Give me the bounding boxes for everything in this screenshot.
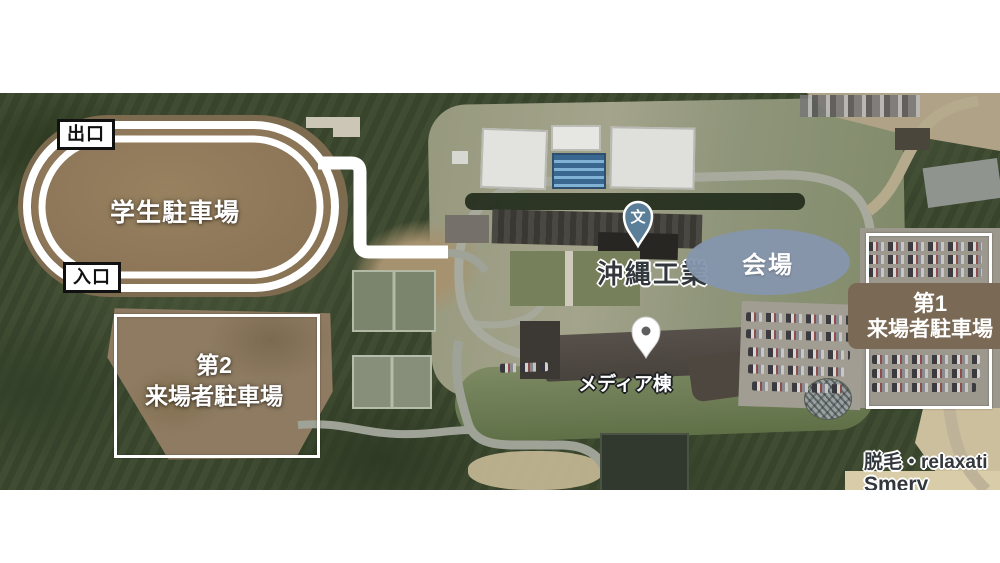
visitor-parking2-line1: 第2 (114, 350, 314, 381)
poi-label-line2: Smery (864, 473, 928, 490)
poi-label-line1: 脱毛・relaxati (864, 447, 988, 474)
school-pin-glyph: 文 (630, 208, 646, 226)
visitor-parking1-line2: 来場者駐車場 (867, 317, 993, 342)
media-building-label: メディア棟 (560, 369, 690, 396)
exit-label: 出口 (57, 119, 115, 150)
student-parking-label: 学生駐車場 (85, 193, 265, 229)
screenshot-canvas: 文 出口 入口 学生駐車場 第2 来場者駐車場 第1 来場者駐車場 沖縄工業 会… (0, 0, 1000, 563)
location-pin-icon (632, 317, 660, 358)
campus-satellite-map: 文 出口 入口 学生駐車場 第2 来場者駐車場 第1 来場者駐車場 沖縄工業 会… (0, 93, 1000, 490)
visitor-parking1-line1: 第1 (913, 291, 947, 317)
visitor-parking2-label: 第2 来場者駐車場 (114, 350, 314, 412)
venue-ellipse: 会場 (686, 229, 850, 295)
venue-label: 会場 (742, 245, 794, 280)
visitor-parking1-label-box: 第1 来場者駐車場 (848, 283, 1000, 349)
visitor-parking2-line2: 来場者駐車場 (114, 381, 314, 412)
entrance-label: 入口 (63, 262, 121, 293)
school-pin-icon: 文 (624, 202, 652, 246)
